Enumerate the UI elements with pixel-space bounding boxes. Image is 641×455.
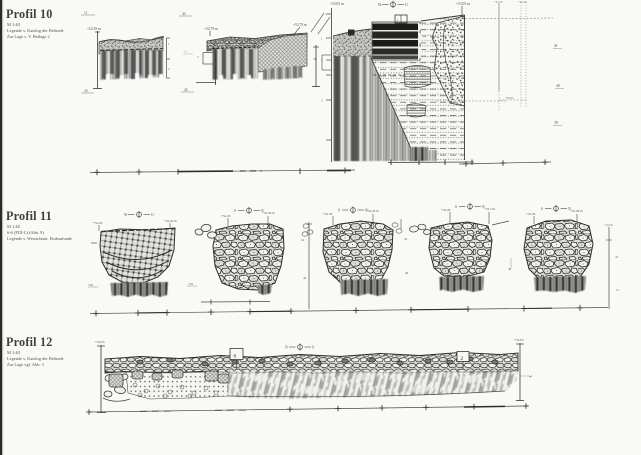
svg-text:39: 39 [554,121,558,125]
svg-text:2: 2 [461,356,464,362]
svg-text:+53.05 m: +53.05 m [456,2,470,6]
svg-text:6-6 (FIII-L) (Abb. 9): 6-6 (FIII-L) (Abb. 9) [7,230,44,235]
svg-text:O: O [405,3,408,7]
svg-text:11: 11 [616,288,620,292]
svg-text:+52.79: +52.79 [494,0,503,4]
svg-text:S: S [234,209,236,213]
svg-text:+49: +49 [188,282,193,286]
svg-text:+52.29 m: +52.29 m [87,27,101,31]
svg-text:41: 41 [301,238,305,242]
svg-text:44: 44 [184,88,188,92]
svg-text:41: 41 [554,44,558,48]
svg-text:Profil 12: Profil 12 [6,335,53,349]
svg-text:+52.29: +52.29 [526,212,536,216]
svg-text:+49: +49 [88,283,93,287]
svg-text:40: 40 [303,276,307,280]
svg-text:M 1:40: M 1:40 [7,22,21,27]
svg-text:+52.05: +52.05 [514,338,524,342]
svg-text:+53.05 m: +53.05 m [330,2,344,6]
svg-text:S: S [541,207,543,211]
svg-text:40: 40 [405,271,409,275]
svg-text:+52.29: +52.29 [441,208,451,212]
svg-text:+52.29: +52.29 [518,0,527,4]
svg-text:Zur Lage s. V. Beilage 2: Zur Lage s. V. Beilage 2 [7,34,50,39]
svg-text:Profil 10: Profil 10 [6,7,53,21]
svg-text:41: 41 [615,255,619,259]
svg-text:1: 1 [397,18,399,22]
svg-text:+52.7 m: +52.7 m [484,207,495,211]
svg-text:M 1:40: M 1:40 [7,350,21,355]
svg-text:S: S [312,346,314,350]
svg-text:+52.29 m: +52.29 m [262,211,275,215]
svg-text:+52.29: +52.29 [604,223,613,227]
svg-text:N: N [285,346,288,350]
svg-text:W: W [124,213,128,217]
svg-text:S: S [455,205,457,209]
svg-text:6: 6 [234,354,237,360]
svg-text:M 1:40: M 1:40 [7,224,21,229]
svg-text:44: 44 [182,12,186,16]
svg-text:+52.29: +52.29 [221,214,231,218]
svg-text:41: 41 [404,237,408,241]
svg-text:+52.29: +52.29 [323,212,333,216]
svg-text:11: 11 [184,50,188,54]
svg-text:+52.29 m: +52.29 m [164,219,177,223]
svg-text:W: W [378,3,382,7]
svg-text:44: 44 [84,89,88,93]
svg-text:+52.29 m: +52.29 m [570,209,583,213]
svg-text:Legende s. Katalog der Befunde: Legende s. Katalog der Befunde [7,356,64,361]
svg-text:+52.29: +52.29 [93,221,103,225]
svg-text:40: 40 [556,84,560,88]
svg-text:11: 11 [84,11,88,15]
svg-text:Legende s. Katalog der Befunde: Legende s. Katalog der Befunde [7,28,64,33]
svg-text:+52.79 m: +52.79 m [293,23,307,27]
svg-text:+52.05: +52.05 [95,340,105,344]
svg-text:Profil 11: Profil 11 [6,209,52,223]
svg-text:+52.79 m: +52.79 m [204,27,218,31]
svg-text:S: S [338,209,340,213]
svg-text:Zur Lage vgl. Abb. 3: Zur Lage vgl. Abb. 3 [7,362,45,367]
svg-text:+50.05: +50.05 [505,96,514,100]
svg-text:+52.29 m: +52.29 m [366,209,379,213]
svg-text:O: O [151,213,154,217]
